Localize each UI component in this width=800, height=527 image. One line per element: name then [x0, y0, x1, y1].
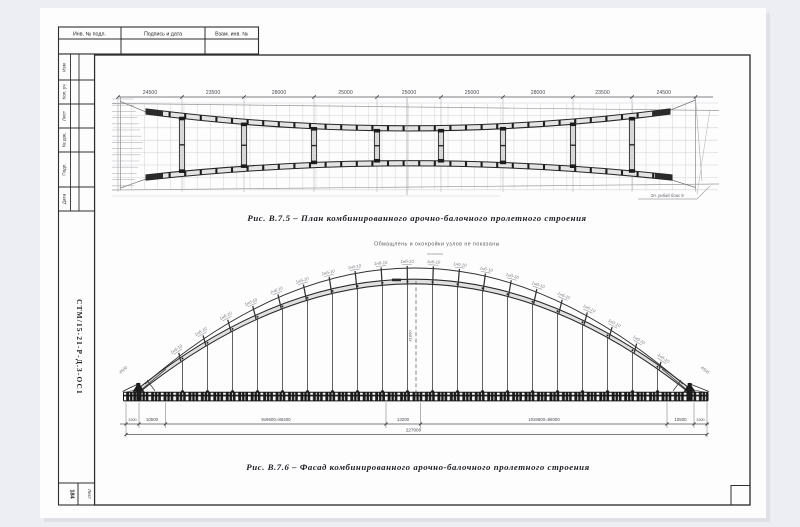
svg-text:Подпись и дата: Подпись и дата [144, 32, 182, 38]
svg-text:3200: 3200 [696, 418, 704, 422]
svg-text:Лист: Лист [87, 489, 92, 500]
svg-text:Кол. уч: Кол. уч [62, 84, 67, 100]
svg-text:25000: 25000 [338, 90, 353, 96]
svg-text:1нб-10: 1нб-10 [427, 259, 441, 265]
svg-text:24500: 24500 [657, 90, 672, 96]
svg-text:10500: 10500 [146, 417, 159, 422]
svg-text:41800: 41800 [408, 330, 413, 342]
svg-text:23500: 23500 [595, 90, 610, 96]
svg-text:Взам. инв. №: Взам. инв. № [215, 32, 248, 38]
svg-text:3200: 3200 [128, 418, 136, 422]
svg-text:Обмащлень и оконройки узлов не: Обмащлень и оконройки узлов не показаны [374, 241, 500, 248]
svg-text:23500: 23500 [206, 90, 221, 96]
svg-text:28000: 28000 [531, 90, 546, 96]
svg-text:Рис. В.7.6 – Фасад комбинирова: Рис. В.7.6 – Фасад комбинированного ароч… [246, 462, 589, 472]
svg-text:Рис. В.7.5 – План комбинирован: Рис. В.7.5 – План комбинированного арочн… [247, 213, 586, 223]
svg-text:13200: 13200 [397, 417, 410, 422]
svg-text:Инв. № подл.: Инв. № подл. [73, 32, 106, 38]
svg-text:Изм: Изм [62, 63, 67, 72]
svg-text:9х9600=86400: 9х9600=86400 [261, 417, 291, 422]
svg-text:184: 184 [69, 489, 75, 499]
svg-text:1нб-10: 1нб-10 [400, 259, 414, 264]
svg-text:24500: 24500 [143, 90, 158, 96]
svg-text:Эл. рибай боис 9: Эл. рибай боис 9 [650, 193, 684, 198]
svg-text:СТМ/15-21-Р-Д.3-ОС1: СТМ/15-21-Р-Д.3-ОС1 [75, 299, 84, 395]
svg-text:25000: 25000 [465, 90, 480, 96]
svg-text:Дата: Дата [62, 193, 67, 204]
svg-text:№ док.: № док. [62, 133, 67, 148]
svg-text:Подп.: Подп. [62, 163, 67, 175]
svg-text:25000: 25000 [402, 90, 417, 96]
svg-text:10х9600=96000: 10х9600=96000 [528, 417, 560, 422]
svg-text:Лист: Лист [62, 110, 67, 121]
svg-text:28000: 28000 [272, 90, 287, 96]
svg-text:10500: 10500 [674, 417, 687, 422]
svg-text:227000: 227000 [406, 428, 422, 433]
